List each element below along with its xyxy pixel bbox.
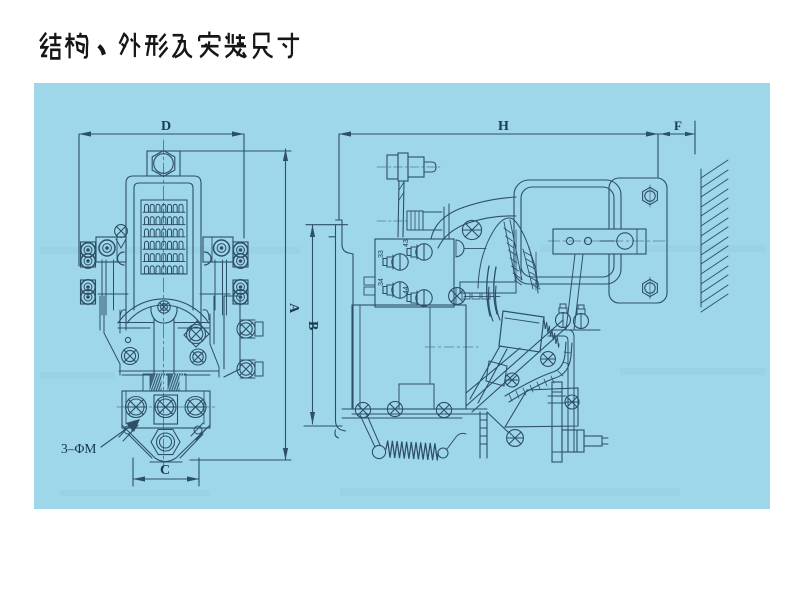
svg-text:H: H — [498, 119, 509, 134]
svg-text:44: 44 — [403, 286, 410, 294]
svg-text:D: D — [161, 119, 171, 134]
svg-text:33: 33 — [378, 250, 385, 258]
svg-text:43: 43 — [403, 239, 410, 247]
svg-text:34: 34 — [378, 278, 385, 286]
svg-text:3–ΦM: 3–ΦM — [61, 441, 96, 456]
svg-text:F: F — [674, 118, 682, 133]
svg-text:B: B — [305, 321, 320, 330]
svg-text:A: A — [286, 303, 301, 314]
svg-text:C: C — [160, 463, 170, 478]
